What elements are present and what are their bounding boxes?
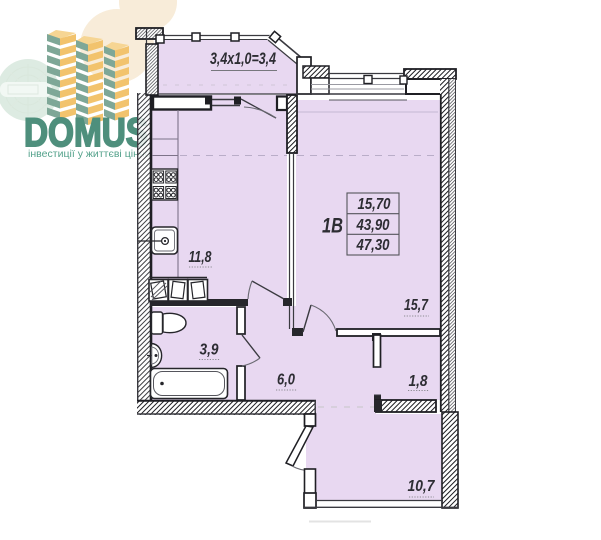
svg-text:6,0: 6,0 xyxy=(277,372,295,389)
svg-text:3,4х1,0=3,4: 3,4х1,0=3,4 xyxy=(210,49,276,68)
svg-text:1,8: 1,8 xyxy=(409,373,428,390)
svg-text:47,30: 47,30 xyxy=(356,237,390,254)
svg-text:1B: 1B xyxy=(322,215,343,238)
svg-text:11,8: 11,8 xyxy=(189,249,212,266)
svg-text:3,9: 3,9 xyxy=(200,342,219,359)
svg-text:15,70: 15,70 xyxy=(358,196,391,213)
svg-text:15,7: 15,7 xyxy=(404,297,429,314)
svg-text:10,7: 10,7 xyxy=(408,478,436,495)
svg-text:43,90: 43,90 xyxy=(356,217,390,234)
